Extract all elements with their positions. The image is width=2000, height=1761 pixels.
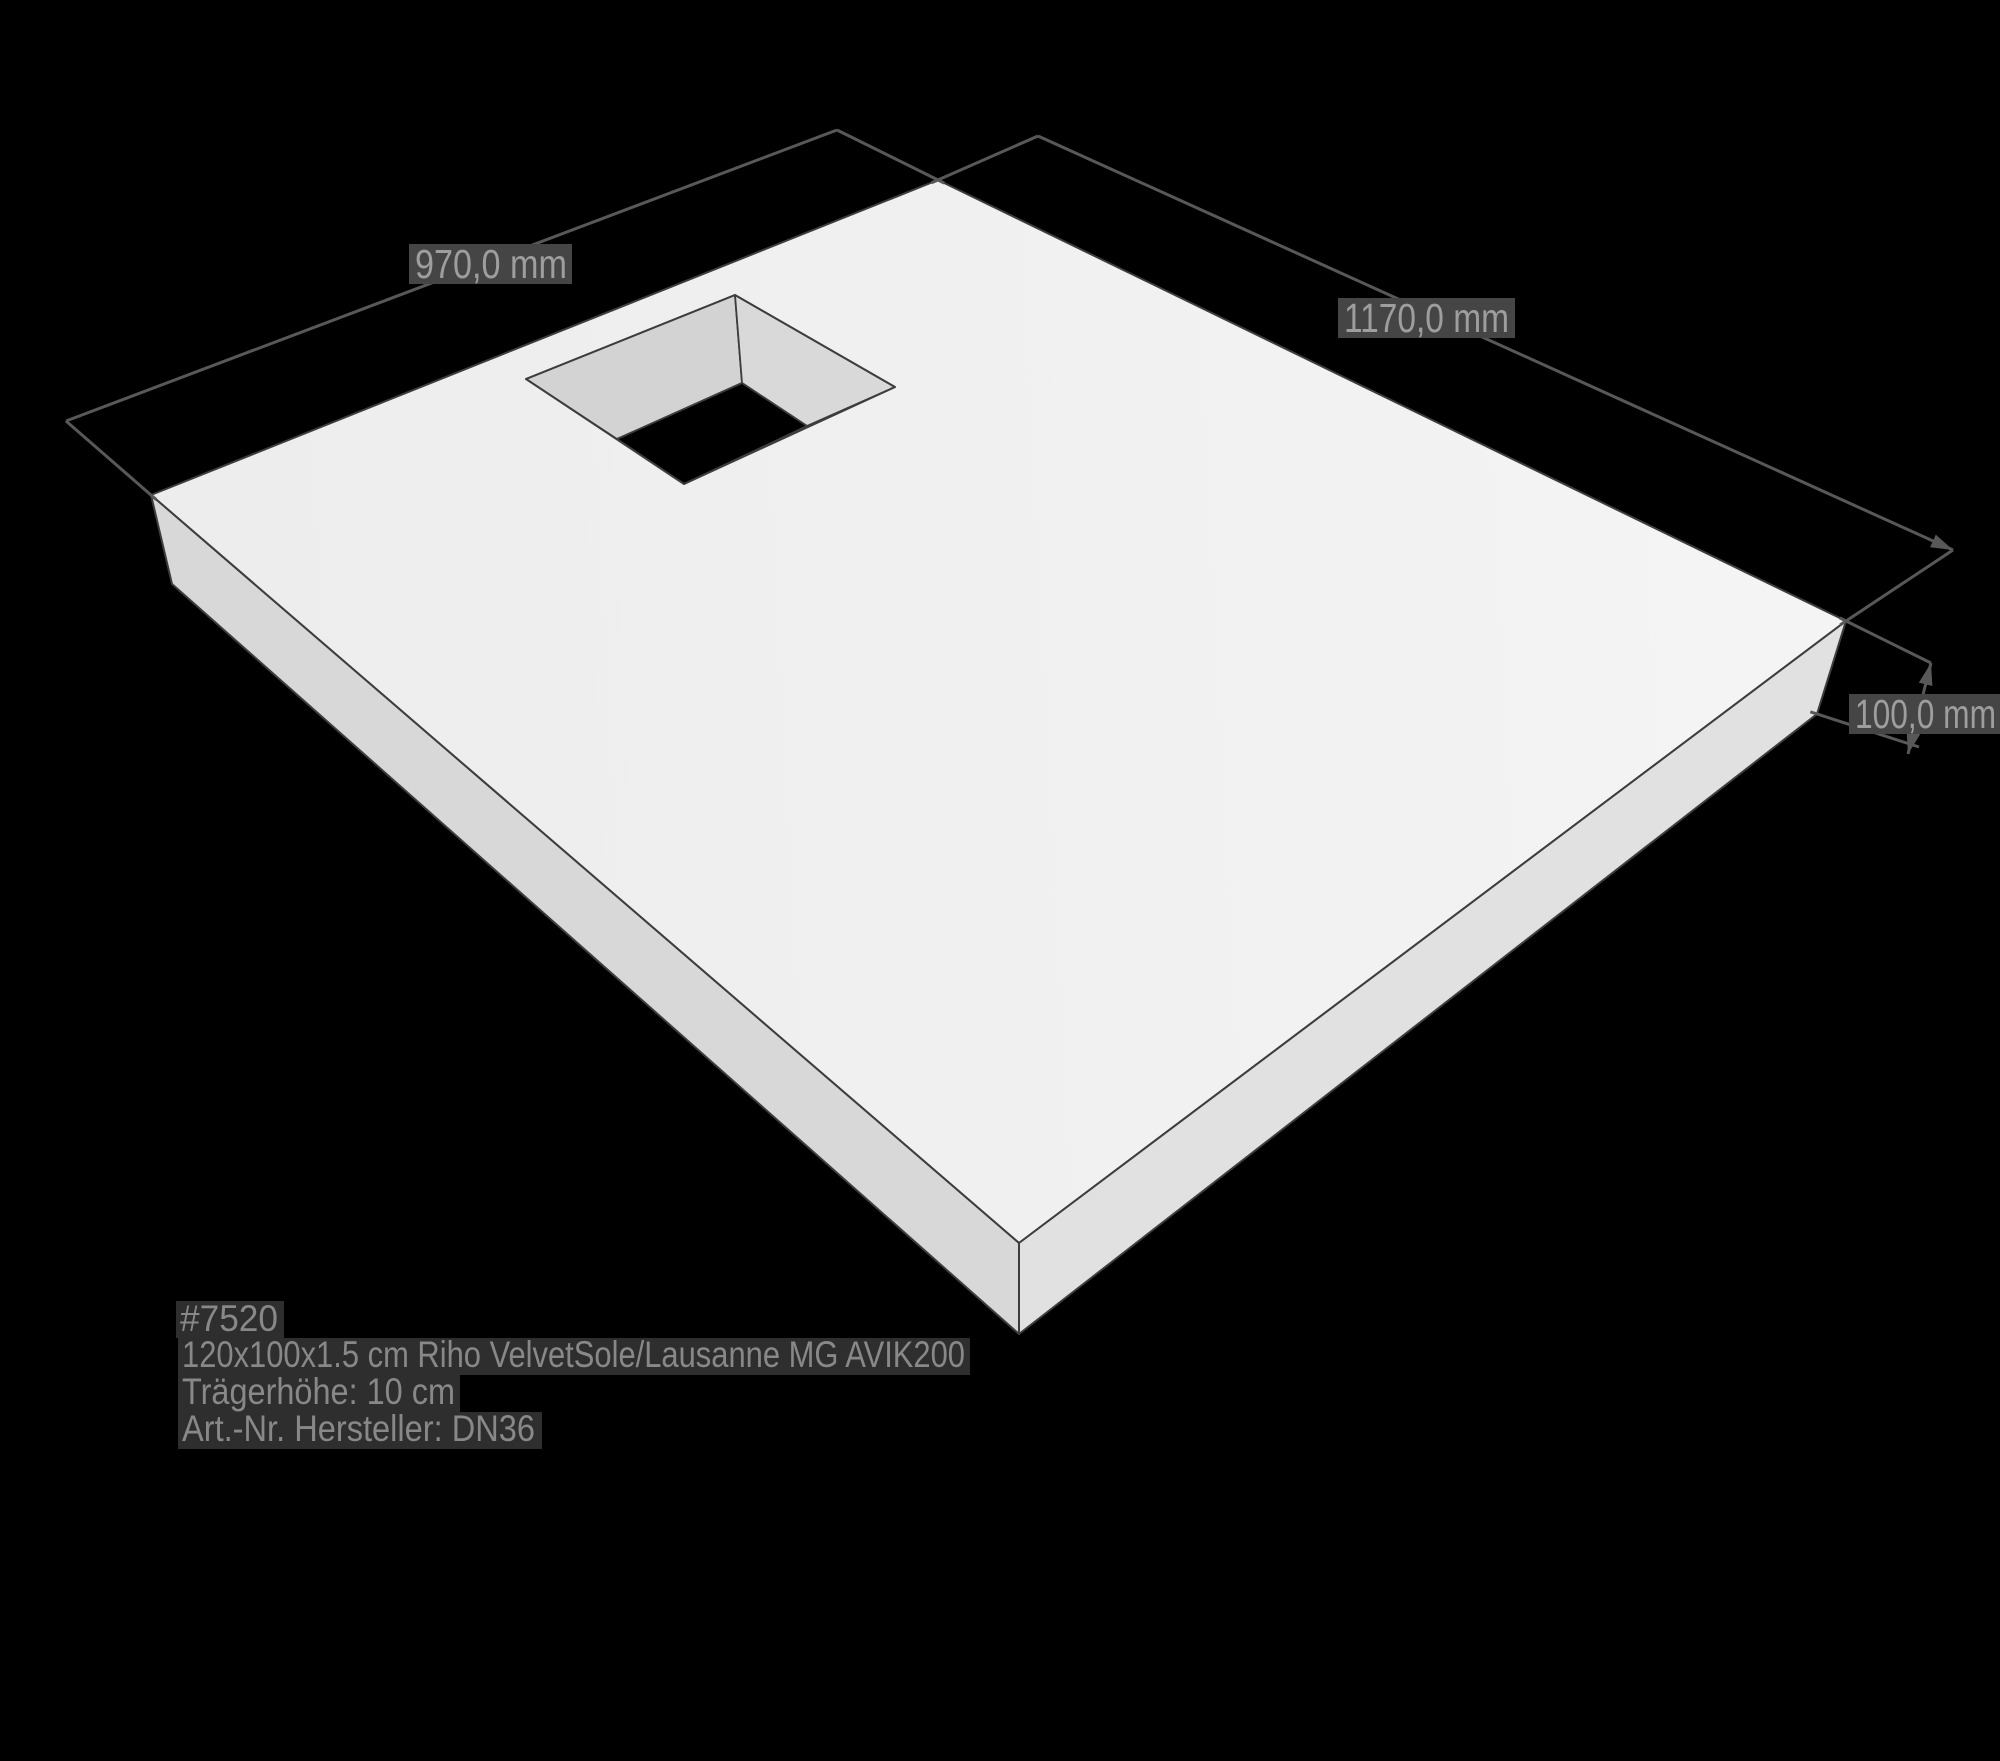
svg-text:Trägerhöhe: 10 cm: Trägerhöhe: 10 cm <box>182 1371 455 1412</box>
svg-text:100,0 mm: 100,0 mm <box>1855 691 1996 737</box>
svg-text:120x100x1.5 cm Riho VelvetSole: 120x100x1.5 cm Riho VelvetSole/Lausanne … <box>182 1334 965 1375</box>
svg-text:#7520: #7520 <box>180 1298 278 1339</box>
svg-text:Art.-Nr. Hersteller: DN36: Art.-Nr. Hersteller: DN36 <box>182 1408 535 1449</box>
svg-text:1170,0 mm: 1170,0 mm <box>1344 295 1509 341</box>
svg-text:970,0 mm: 970,0 mm <box>415 241 567 287</box>
